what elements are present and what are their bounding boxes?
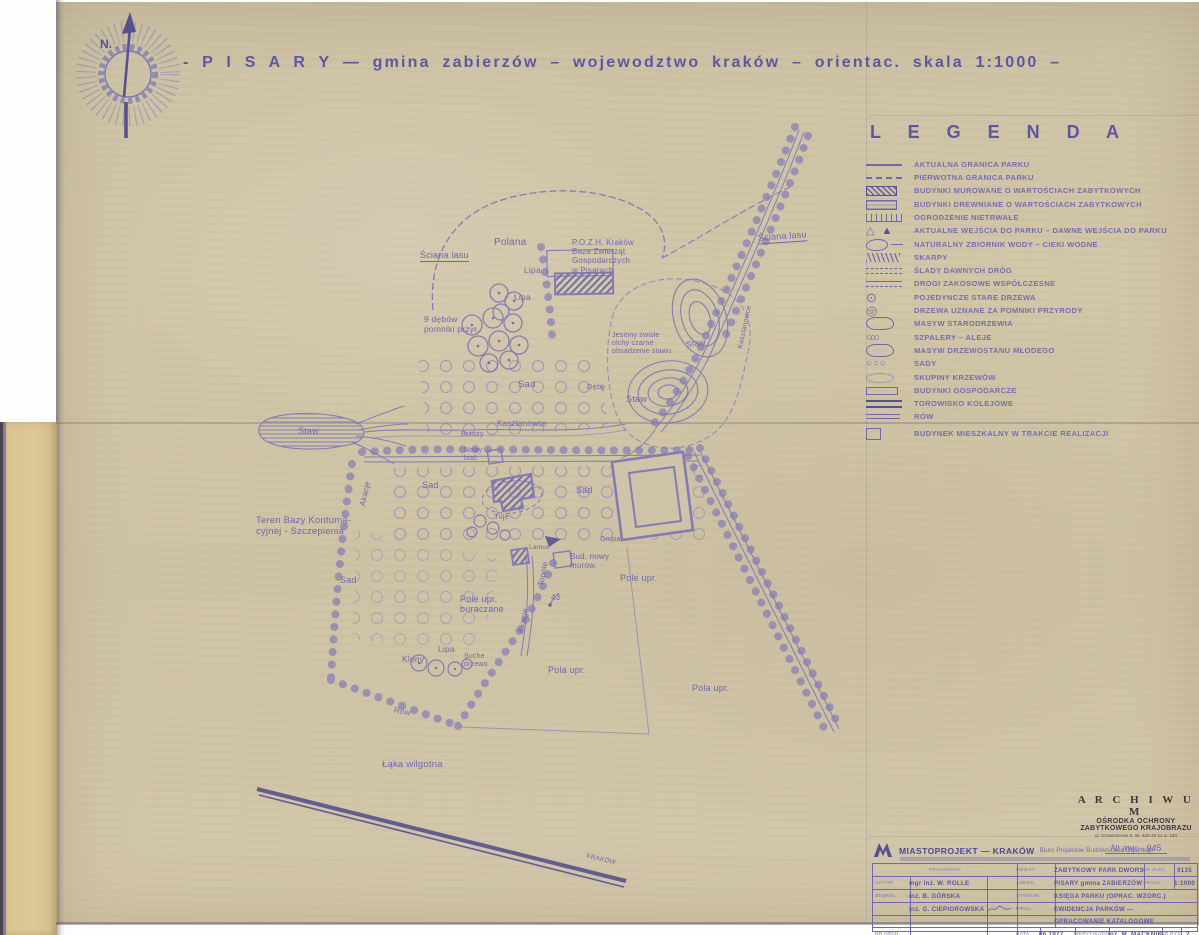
railway-symbol <box>866 398 906 410</box>
orchard-symbol <box>866 358 906 370</box>
legend-item: AKTUALNE WEJŚCIA DO PARKU – DAWNE WEJŚCI… <box>866 224 1167 237</box>
legend-item: SKARPY <box>866 251 948 264</box>
cell-nr-arch-label: NR ARCH. <box>873 928 911 935</box>
legend-item: BUDYNKI GOSPODARCZE <box>866 384 1017 397</box>
cell-skala: 1:1000 <box>1171 877 1198 890</box>
legend-item: ŚLADY DAWNYCH DRÓG <box>866 264 1012 277</box>
cell-name2: inż. B. GÓRSKA <box>907 890 988 903</box>
map-label-brzozy: Brzozy <box>461 431 484 439</box>
map-label-laka-wilgotna: Łąka wilgotna <box>382 760 443 771</box>
map-label-sad-3: Sad <box>576 485 593 495</box>
miastoprojekt-logo-icon <box>872 843 894 858</box>
stamp-address: ul. Szwoleżerów 9, tel. 628 48 41 w. 153 <box>1076 833 1196 838</box>
cell-stadium: KSIĘGA PARKU (OPRAC. WZORC.) <box>1052 890 1198 903</box>
cell-zespol-label: ZESPÓŁ <box>873 890 911 903</box>
map-label-pola-upr-2: Pola upr. <box>692 683 729 693</box>
cell-data: 06.1977 <box>1037 928 1076 935</box>
map-label-sad-2: Sad <box>422 480 439 490</box>
map-label-43: 43 <box>551 593 560 602</box>
map-label-lipa-2: Lipa <box>514 293 531 303</box>
cell-proj-2: OPRACOWANIE KATALOGOWE <box>1052 916 1198 928</box>
legend-item: SADY <box>866 357 937 370</box>
map-label-sciana-lasu-west: Ściana lasu <box>420 250 469 262</box>
map-label-tuje: Tuje <box>494 513 509 522</box>
cell-weryfikator-label: WERYFIKATOR <box>1072 928 1110 935</box>
wooden-building-symbol <box>866 199 906 211</box>
legend-item: DROGI ZAKOSOWE WSPÓŁCZESNE <box>866 277 1056 290</box>
tree-row-symbol <box>866 332 906 344</box>
cell-weryfikator: inż. M. MACKNIK <box>1106 928 1163 935</box>
old-road-trace-symbol <box>866 265 906 277</box>
stamp-archiwum: A R C H I W U M <box>1076 794 1196 818</box>
cell-nr-zlec: 9135 <box>1171 864 1198 877</box>
map-label-pole-buraczane: Pole upr. buraczane <box>460 594 504 615</box>
legend-item: MASYW DRZEWOSTANU MŁODEGO <box>866 344 1055 357</box>
map-label-sad-4: Sad <box>340 575 357 585</box>
map-label-staw-2: Staw <box>626 394 647 404</box>
legend-item: BUDYNKI DREWNIANE O WARTOŚCIACH ZABYTKOW… <box>866 198 1142 211</box>
legend-heading: L E G E N D A <box>870 122 1130 143</box>
map-label-sad-1: Sad <box>518 380 536 391</box>
young-stand-symbol <box>866 345 906 357</box>
legend-item: DRZEWA UZNANE ZA POMNIKI PRZYRODY <box>866 304 1083 317</box>
cell-nr-zlec-label: NR ZLEC. <box>1141 864 1175 877</box>
cell-proj-1: EWIDENCJA PARKÓW — <box>1052 903 1198 916</box>
legend-item: PIERWOTNA GRANICA PARKU <box>866 171 1034 184</box>
map-label-grupa: Grupa <box>600 536 620 544</box>
map-label-lamus: Lamus <box>529 544 550 551</box>
cell-signature-2 <box>984 890 1018 903</box>
legend-item: AKTUALNA GRANICA PARKU <box>866 158 1029 171</box>
map-label-deby-pomniki: 9 dębów pomniki przyr. <box>424 315 479 335</box>
cell-autor-label: AUTOR <box>873 877 911 890</box>
cell-proj-label: PROJ. <box>1014 903 1056 916</box>
map-label-pozh-base: P.O.Z.H. Kraków Baza Zwierząt Gospodarcz… <box>572 238 634 275</box>
cell-nr-rys: 2 <box>1178 928 1198 935</box>
solid-line-symbol <box>866 159 906 171</box>
map-label-pole-upr: Pole upr. <box>620 573 657 583</box>
legend-item: SZPALERY – ALEJE <box>866 331 992 344</box>
fence-symbol <box>866 212 906 224</box>
legend-item: SKUPINY KRZEWÓW <box>866 371 996 384</box>
signature-icon <box>986 904 1012 914</box>
cell-signature-1 <box>984 877 1018 890</box>
legend-item: TOROWISKO KOLEJOWE <box>866 397 1013 410</box>
legend-item: POJEDYNCZE STARE DRZEWA <box>866 291 1036 304</box>
map-label-kasztanowce-row: Kasztanowce <box>497 419 547 428</box>
map-label-lipa-1: Lipa <box>524 266 541 276</box>
cell-skala-label: SKALA <box>1141 877 1175 890</box>
map-label-bud-nowy-murow: Bud. nowy murow. <box>570 552 609 570</box>
title-block-shade <box>900 857 1190 861</box>
map-label-lipa-3: Lipa <box>438 645 455 655</box>
firm-subtitle: Biuro Projektów Budownictwa Ogólnego <box>1040 847 1154 854</box>
stamp-line3: ZABYTKOWEGO KRAJOBRAZU <box>1076 825 1196 832</box>
legend-item: MASYW STARODRZEWIA <box>866 317 1013 330</box>
old-stand-symbol <box>866 318 906 330</box>
modern-road-symbol <box>866 278 906 290</box>
ditch-symbol <box>866 411 906 423</box>
cell-pracownia: PRACOWNIA <box>873 864 1018 877</box>
monument-tree-symbol <box>866 305 906 317</box>
legend-item: BUDYNEK MIESZKALNY W TRAKCIE REALIZACJI <box>866 427 1109 440</box>
map-label-jesiony: Jesiony zwisłe olchy czarne obsadzenie s… <box>612 332 671 356</box>
map-label-staw-west: Staw <box>298 426 319 436</box>
shrub-group-symbol <box>866 372 906 384</box>
title-block-table: PRACOWNIA OBIEKT ZABYTKOWY PARK DWORSKI … <box>872 863 1198 932</box>
map-label-klony: Klony <box>402 655 424 665</box>
stamp-line2: OŚRODKA OCHRONY <box>1076 818 1196 825</box>
cell-autor: mgr inż. W. ROLLE <box>907 877 988 890</box>
firm-name: MIASTOPROJEKT — KRAKÓW <box>899 846 1035 856</box>
cell-adres: PISARY gmina ZABIERZÓW <box>1052 877 1145 890</box>
farm-building-symbol <box>866 385 906 397</box>
map-label-polana: Polana <box>494 237 526 249</box>
scanned-plan-page: N. - P I S A R Y — gmina zabierzów – woj… <box>0 0 1199 935</box>
map-label-teren-bazy: Teren Bazy Kontuma- cyjnej - Szczepienia <box>256 516 351 538</box>
cell-name3: inż. G. CIEPIOROWSKA <box>907 903 988 916</box>
cell-obiekt: ZABYTKOWY PARK DWORSKI <box>1052 864 1145 877</box>
hatched-building-symbol <box>866 185 906 197</box>
entrance-triangles-symbol <box>866 225 906 237</box>
pond-symbol <box>866 239 906 251</box>
map-label-nowy-bud: Nowy bud. <box>464 447 482 463</box>
legend-item: RÓW <box>866 410 934 423</box>
map-label-suche-drzewo: Suche drzewo <box>464 653 488 669</box>
escarpment-symbol <box>866 252 906 264</box>
dashed-line-symbol <box>866 172 906 184</box>
cell-adres-label: ADRES <box>1014 877 1056 890</box>
map-label-pola-upr-1: Pola upr. <box>548 665 585 675</box>
legend-item: NATURALNY ZBIORNIK WODY – CIEKI WODNE <box>866 238 1098 251</box>
legend-item: BUDYNKI MUROWANE O WARTOŚCIACH ZABYTKOWY… <box>866 184 1141 197</box>
map-label-deby: Dęby <box>587 383 605 392</box>
cell-stadium-label: STADIUM <box>1014 890 1056 903</box>
building-under-construction-symbol <box>866 428 906 440</box>
legend-item: OGRODZENIE NIETRWAŁE <box>866 211 1019 224</box>
title-block: MIASTOPROJEKT — KRAKÓW Biuro Projektów B… <box>872 842 1196 930</box>
cell-obiekt-label: OBIEKT <box>1014 864 1056 877</box>
cell-signature-3 <box>984 903 1018 916</box>
